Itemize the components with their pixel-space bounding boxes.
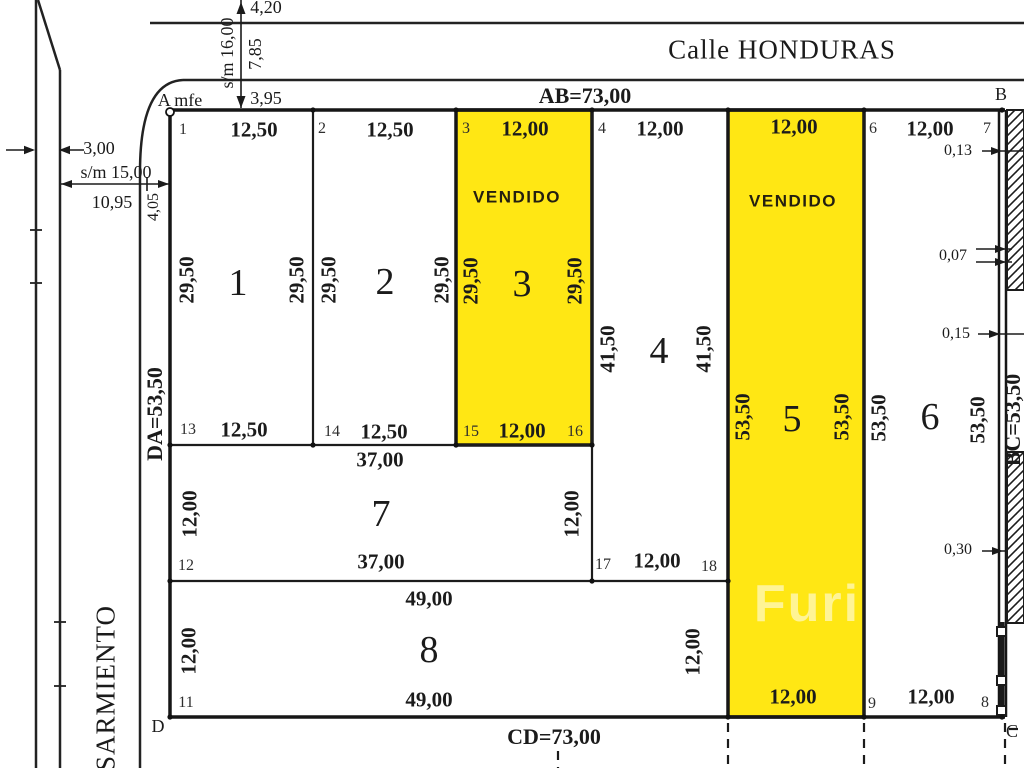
offset-0-07: 0,07 (939, 248, 967, 264)
lot6-front: 12,00 (906, 119, 953, 140)
vertex-13: 13 (180, 422, 196, 438)
corner-c-label: C (1006, 722, 1018, 740)
lot3-front: 12,00 (501, 119, 548, 140)
vertex-12: 12 (178, 558, 194, 574)
street-name-honduras: Calle HONDURAS (668, 37, 896, 64)
boundary-da-label: DA=53,50 (144, 367, 166, 461)
vertex-14: 14 (324, 424, 340, 440)
vertex-17: 17 (595, 557, 611, 573)
lot8-depth-left: 12,00 (179, 627, 200, 674)
lot6-depth-right: 53,50 (968, 396, 989, 443)
vertex-1: 1 (179, 122, 187, 138)
lot4-front: 12,00 (636, 119, 683, 140)
lot1-front: 12,50 (230, 120, 277, 141)
lot1-back: 12,50 (220, 420, 267, 441)
lot2-front: 12,50 (366, 120, 413, 141)
lot5-depth-right: 53,50 (832, 393, 853, 440)
lot8-number: 8 (420, 631, 439, 669)
street-name-sarmiento: SARMIENTO (93, 605, 120, 768)
labels-layer: 4,20s/m 16,007,853,953,00s/m 15,0010,954… (0, 0, 1024, 768)
dim-3-95: 3,95 (250, 89, 282, 107)
offset-0-30: 0,30 (944, 542, 972, 558)
lot1-depth-right: 29,50 (287, 256, 308, 303)
lot7-width-bottom: 37,00 (357, 552, 404, 573)
lot1-depth-left: 29,50 (177, 256, 198, 303)
boundary-cd-label: CD=73,00 (507, 726, 601, 748)
dim-3-00: 3,00 (83, 139, 115, 157)
lot5-sold-label: VENDIDO (749, 193, 837, 210)
vertex-9: 9 (868, 696, 876, 712)
lot3-depth-right: 29,50 (565, 257, 586, 304)
watermark: Furi (754, 578, 860, 630)
lot6-back: 12,00 (907, 687, 954, 708)
vertex-11: 11 (178, 695, 193, 711)
survey-plan-canvas: 4,20s/m 16,007,853,953,00s/m 15,0010,954… (0, 0, 1024, 768)
lot8-width-bottom: 49,00 (405, 690, 452, 711)
vertex-7: 7 (983, 121, 991, 137)
lot8-width-top: 49,00 (405, 589, 452, 610)
lot5-depth-left: 53,50 (733, 393, 754, 440)
corner-d-label: D (152, 717, 165, 735)
offset-0-15: 0,15 (942, 326, 970, 342)
dim-4-20: 4,20 (250, 0, 282, 16)
corner-b-label: B (995, 85, 1007, 103)
dim-10-95: 10,95 (92, 193, 133, 211)
vertex-15: 15 (463, 424, 479, 440)
dim-sm-15-00: s/m 15,00 (80, 163, 151, 181)
lot4-back: 12,00 (633, 551, 680, 572)
lot2-depth-right: 29,50 (432, 256, 453, 303)
lot7-width-top: 37,00 (356, 450, 403, 471)
lot7-depth-right: 12,00 (562, 490, 583, 537)
lot5-back: 12,00 (769, 687, 816, 708)
lot3-number: 3 (513, 265, 532, 303)
offset-0-13: 0,13 (944, 143, 972, 159)
vertex-2: 2 (318, 121, 326, 137)
vertex-16: 16 (567, 424, 583, 440)
lot2-back: 12,50 (360, 422, 407, 443)
dim-sm-16-00: s/m 16,00 (218, 17, 236, 88)
boundary-bc-label: BC=53,50 (1002, 374, 1024, 467)
lot3-depth-left: 29,50 (461, 257, 482, 304)
boundary-ab-label: AB=73,00 (539, 85, 632, 107)
lot5-front: 12,00 (770, 117, 817, 138)
lot8-depth-right: 12,00 (683, 628, 704, 675)
vertex-6: 6 (869, 121, 877, 137)
vertex-4: 4 (598, 121, 606, 137)
lot2-number: 2 (376, 263, 395, 301)
lot6-depth-left: 53,50 (869, 394, 890, 441)
lot4-depth-left: 41,50 (598, 325, 619, 372)
vertex-8: 8 (981, 695, 989, 711)
lot5-number: 5 (783, 400, 802, 438)
lot3-sold-label: VENDIDO (473, 189, 561, 206)
vertex-18: 18 (701, 559, 717, 575)
lot4-number: 4 (650, 332, 669, 370)
lot2-depth-left: 29,50 (319, 256, 340, 303)
lot1-number: 1 (229, 264, 248, 302)
lot7-number: 7 (372, 495, 391, 533)
lot4-depth-right: 41,50 (694, 325, 715, 372)
lot6-number: 6 (921, 398, 940, 436)
lot3-back: 12,00 (498, 421, 545, 442)
corner-a-label: A mfe (158, 91, 203, 109)
vertex-3: 3 (462, 121, 470, 137)
lot7-depth-left: 12,00 (180, 490, 201, 537)
dim-7-85: 7,85 (246, 38, 264, 70)
dim-4-05: 4,05 (146, 193, 162, 221)
